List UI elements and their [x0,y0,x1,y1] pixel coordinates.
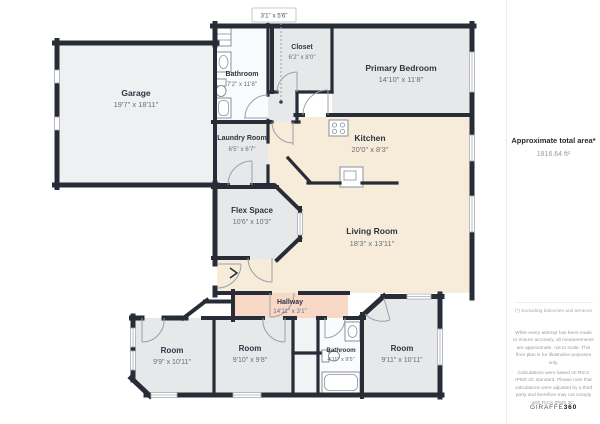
window [131,351,136,370]
sink-vanity-icon [216,52,231,72]
room-label: Closet [291,44,313,51]
window [407,294,431,299]
room-label: Laundry Room [217,135,266,142]
window [55,70,60,83]
info-panel: Approximate total area* 1816.64 ft² (*) … [506,0,600,424]
room-label: Room [239,344,262,353]
logo-suffix: 360 [564,404,577,411]
disclaimer-standard: Calculations were based on RICS IPMS 3C … [513,370,594,407]
dimension-label: 3'1" x 5'6" [260,13,287,20]
room-label: Primary Bedroom [365,63,437,73]
room-label: Living Room [346,226,398,236]
room-dims: 7'2" x 11'8" [227,81,257,88]
window [470,135,475,161]
garage-floor [57,43,215,185]
floor-plan-page: 3'1" x 5'6" Garage 19'7" x 18'11" Bathro… [0,0,600,424]
toilet-tank-icon [216,79,226,86]
room-label: Garage [121,88,151,98]
room-dims: 9'10" x 9'8" [233,357,268,364]
divider [514,302,593,303]
giraffe360-logo: GIRAFFE360 [507,404,600,411]
kitchen-island-icon [340,167,363,187]
room-dims: 10'6" x 10'3" [233,219,272,226]
room-dims: 20'0" x 8'3" [352,145,389,154]
window [151,393,177,398]
room-dims: 9'9" x 10'11" [153,359,191,366]
room-dims: 14'10" x 11'8" [379,75,424,84]
total-area-title: Approximate total area* [507,136,600,145]
room-label: Bathroom [326,347,356,354]
window [55,117,60,130]
window [470,196,475,232]
room-dims: 14'11" x 3'1" [273,308,306,315]
room-label: Bathroom [225,71,258,78]
area-footnote: (*) Excluding balconies and terraces [511,309,596,314]
room-label: Room [161,346,184,355]
laundry-floor [217,124,268,185]
window [438,329,443,365]
window [233,393,261,398]
room-dims: 6'5" x 6'7" [228,146,255,153]
room-label: Flex Space [231,206,273,215]
room-label: Hallway [277,299,303,306]
sink-vanity-icon [345,322,360,341]
closet-strip-top [293,318,318,353]
toilet-bowl-icon [216,86,226,97]
room-dims: 6'2" x 8'0" [288,54,315,61]
room-label: Room [391,344,414,353]
stove-icon [329,120,348,136]
window [298,213,303,235]
total-area-block: Approximate total area* 1816.64 ft² [507,136,600,158]
room-label: Kitchen [354,133,385,143]
room-dims: 19'7" x 18'11" [114,100,159,109]
room-dims: 18'3" x 13'11" [350,239,395,248]
window [470,52,475,92]
room-left-floor [133,318,214,395]
dimension-leader-dot [279,100,283,104]
vestibule-floor [268,92,297,122]
closet-strip-bottom [293,353,318,395]
disclaimer-accuracy: While every attempt has been made to ens… [513,330,594,367]
total-area-value: 1816.64 ft² [507,151,600,158]
room-dims: 4'11" x 9'5" [327,357,354,363]
room-dims: 9'11" x 10'11" [381,357,423,364]
logo-text: GIRAFFE [530,404,564,411]
primary-bedroom-door [303,90,328,115]
window [131,328,136,347]
